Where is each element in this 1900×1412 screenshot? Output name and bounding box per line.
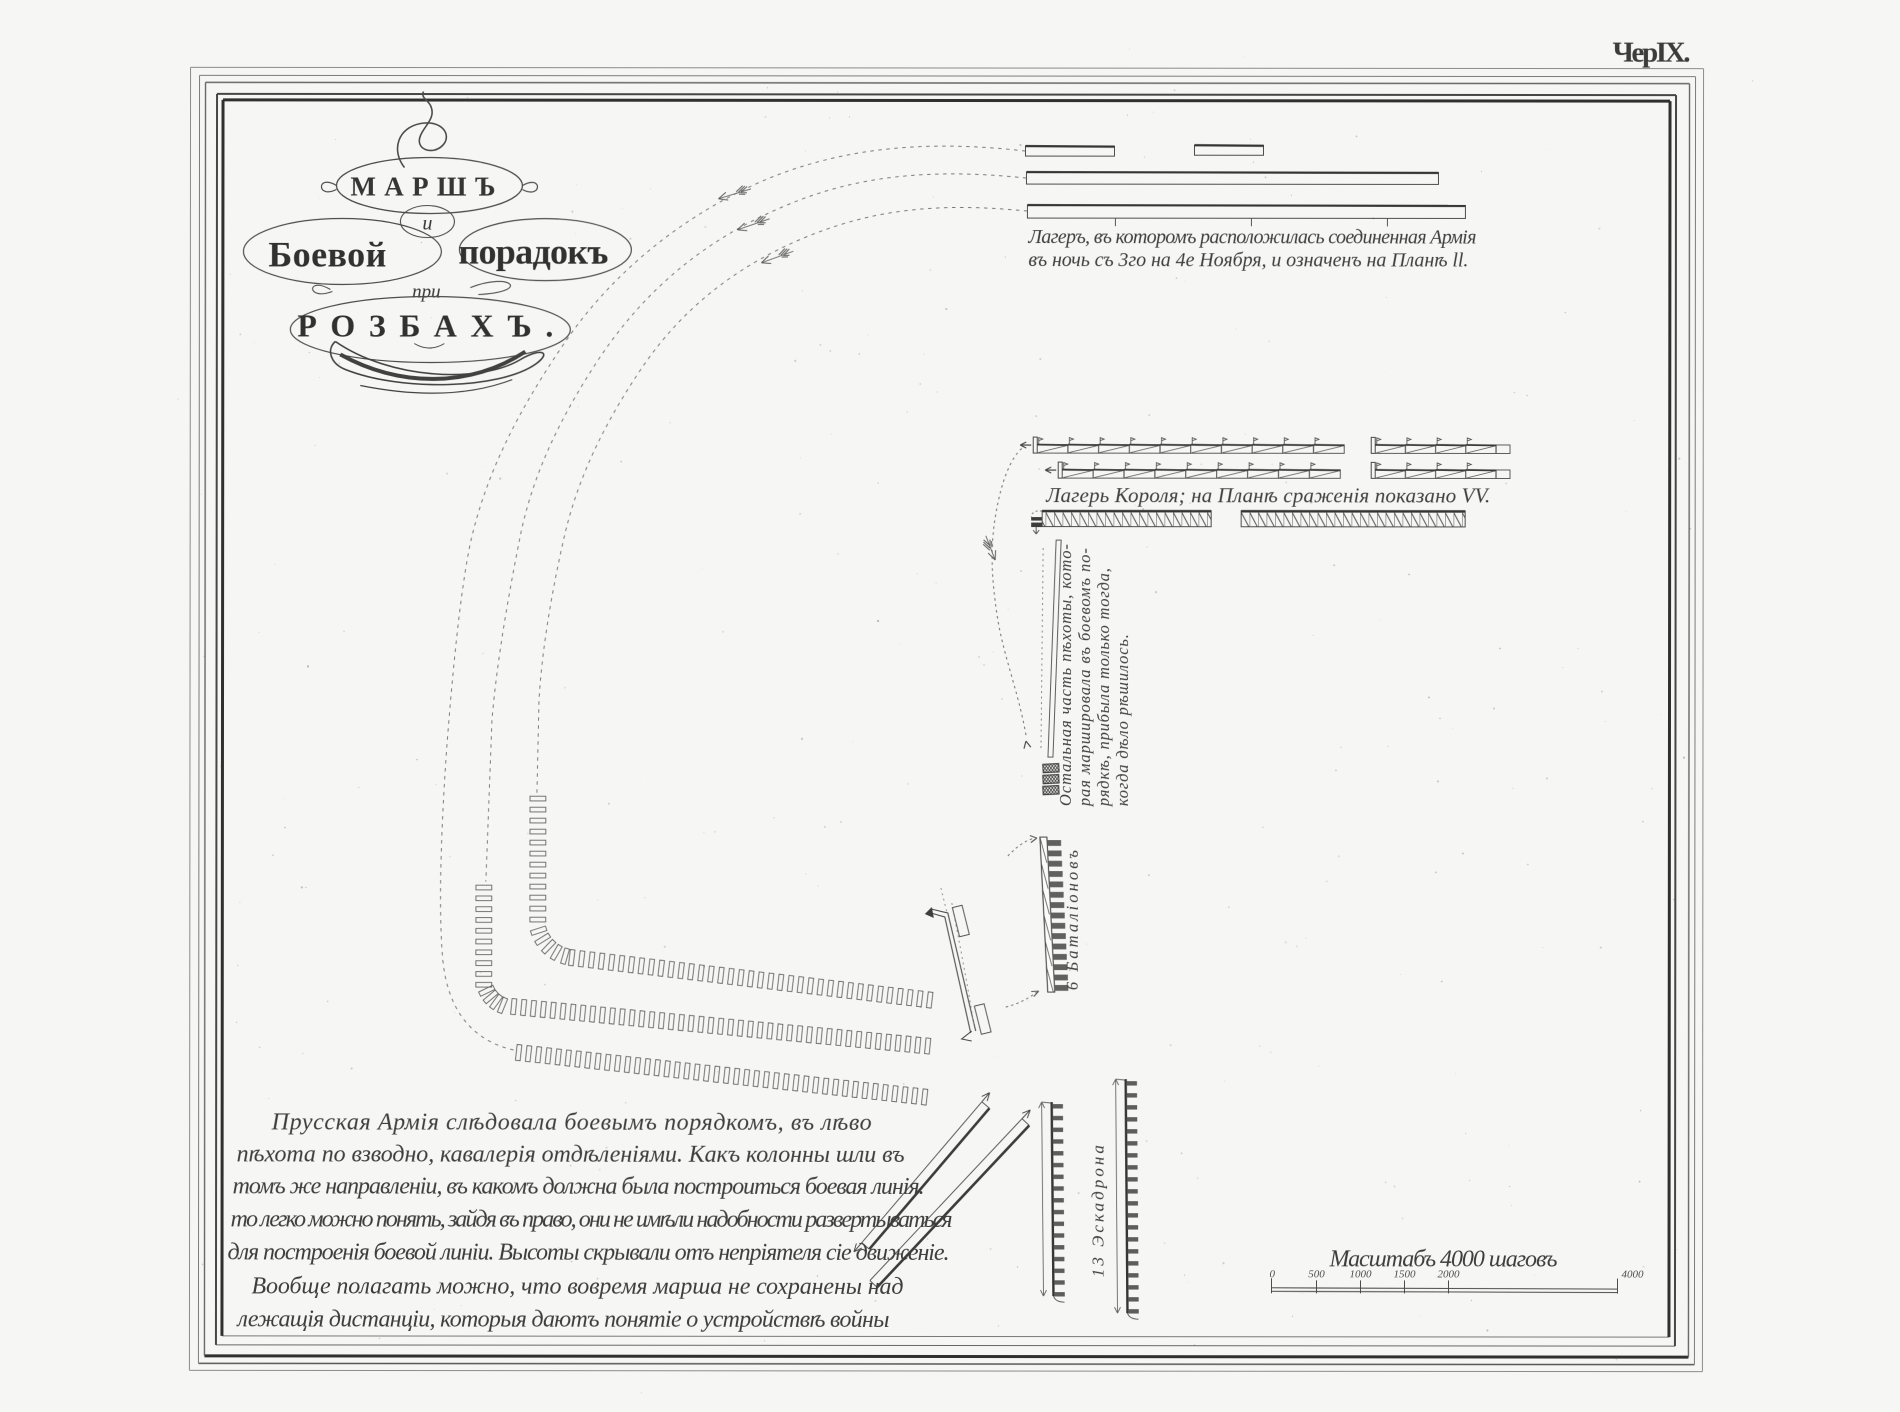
- svg-text:500: 500: [1308, 1268, 1325, 1280]
- svg-text:пѣхота по взводно, кавалерія о: пѣхота по взводно, кавалерія отдѣленіями…: [237, 1141, 905, 1168]
- svg-text:Прусская Армія слѣдовала боевы: Прусская Армія слѣдовала боевымъ порядко…: [271, 1109, 872, 1136]
- svg-text:4000: 4000: [1621, 1269, 1644, 1281]
- svg-text:когда дѣло рѣшилось.: когда дѣло рѣшилось.: [1113, 634, 1132, 806]
- svg-text:томъ же направленіи, въ какомъ: томъ же направленіи, въ какомъ должна бы…: [233, 1173, 925, 1200]
- svg-text:13 Эскадрона: 13 Эскадрона: [1089, 1145, 1108, 1277]
- svg-text:ЧерIX.: ЧерIX.: [1613, 37, 1691, 69]
- svg-text:МАРШЪ: МАРШЪ: [350, 171, 508, 201]
- svg-text:и: и: [422, 213, 432, 235]
- svg-text:то легко можно понять, зайдя в: то легко можно понять, зайдя въ право, о…: [231, 1206, 953, 1233]
- svg-text:0: 0: [1269, 1268, 1275, 1280]
- svg-text:Вообще полагать можно, что вов: Вообще полагать можно, что вовремя марша…: [251, 1273, 903, 1300]
- svg-text:Лагерь Короля; на Планѣ сражен: Лагерь Короля; на Планѣ сраженія показан…: [1045, 483, 1490, 507]
- svg-text:рая маршировала въ боевомъ по-: рая маршировала въ боевомъ по-: [1075, 548, 1094, 807]
- svg-text:6 Баталіоновъ: 6 Баталіоновъ: [1063, 850, 1082, 990]
- svg-text:Остальная часть пѣхоты, кото-: Остальная часть пѣхоты, кото-: [1056, 544, 1075, 806]
- svg-text:въ ночь съ 3го на 4е Ноября, и: въ ночь съ 3го на 4е Ноября, и означенъ …: [1028, 249, 1468, 271]
- svg-text:рядкѣ, прибыла только тогда,: рядкѣ, прибыла только тогда,: [1094, 568, 1113, 807]
- svg-text:2000: 2000: [1437, 1268, 1460, 1280]
- svg-text:Боевой: Боевой: [268, 234, 386, 274]
- svg-text:для построенія боевой линіи. В: для построенія боевой линіи. Высоты скры…: [228, 1239, 950, 1266]
- svg-text:при: при: [412, 282, 441, 303]
- svg-text:1500: 1500: [1393, 1268, 1416, 1280]
- svg-text:Лагеръ, въ которомъ расположил: Лагеръ, въ которомъ расположилась соедин…: [1027, 226, 1476, 248]
- svg-text:РОЗБАХЪ.: РОЗБАХЪ.: [297, 307, 553, 343]
- svg-text:1000: 1000: [1349, 1268, 1372, 1280]
- svg-text:порадокъ: порадокъ: [458, 232, 608, 272]
- svg-text:лежащія дистанціи, которыя даю: лежащія дистанціи, которыя даютъ понятіе…: [235, 1306, 889, 1333]
